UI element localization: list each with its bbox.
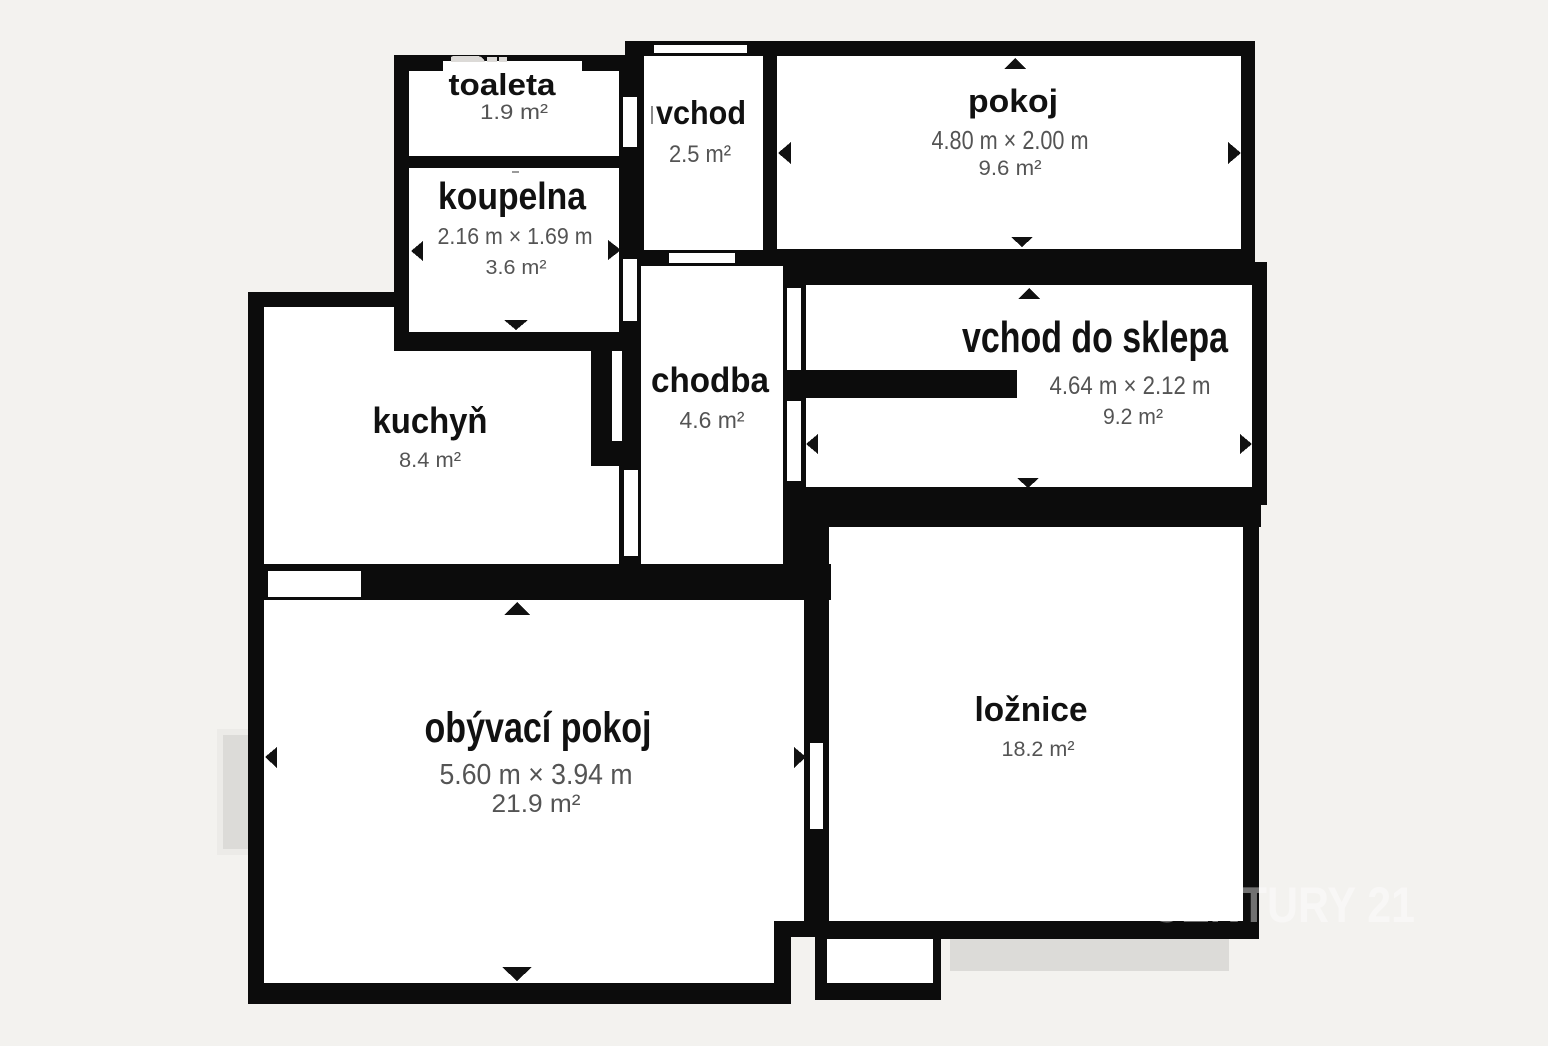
svg-text:1.9 m²: 1.9 m² [480,101,548,124]
svg-text:2.16 m × 1.69 m: 2.16 m × 1.69 m [438,223,593,249]
svg-text:CENTURY 21: CENTURY 21 [1150,877,1415,933]
svg-text:9.6 m²: 9.6 m² [979,157,1042,180]
svg-text:koupelna: koupelna [438,176,587,218]
svg-text:toaleta: toaleta [449,67,557,102]
svg-text:pokoj: pokoj [968,83,1058,119]
svg-text:4.64 m × 2.12 m: 4.64 m × 2.12 m [1050,372,1211,400]
svg-text:9.2 m²: 9.2 m² [1103,404,1163,429]
svg-text:vchod: vchod [656,94,746,131]
svg-text:21.9 m²: 21.9 m² [492,790,581,818]
svg-text:3.6 m²: 3.6 m² [486,257,547,279]
svg-text:vchod do sklepa: vchod do sklepa [962,313,1228,362]
svg-text:8.4 m²: 8.4 m² [399,449,461,472]
svg-text:obývací pokoj: obývací pokoj [425,704,652,752]
svg-text:4.6 m²: 4.6 m² [680,407,745,433]
svg-text:chodba: chodba [651,361,770,400]
svg-text:4.80 m × 2.00 m: 4.80 m × 2.00 m [932,125,1089,155]
svg-text:kuchyň: kuchyň [373,400,488,441]
svg-text:ložnice: ložnice [975,691,1088,729]
svg-text:5.60 m × 3.94 m: 5.60 m × 3.94 m [440,759,633,791]
svg-text:18.2 m²: 18.2 m² [1002,738,1075,761]
svg-text:2.5 m²: 2.5 m² [669,141,731,168]
